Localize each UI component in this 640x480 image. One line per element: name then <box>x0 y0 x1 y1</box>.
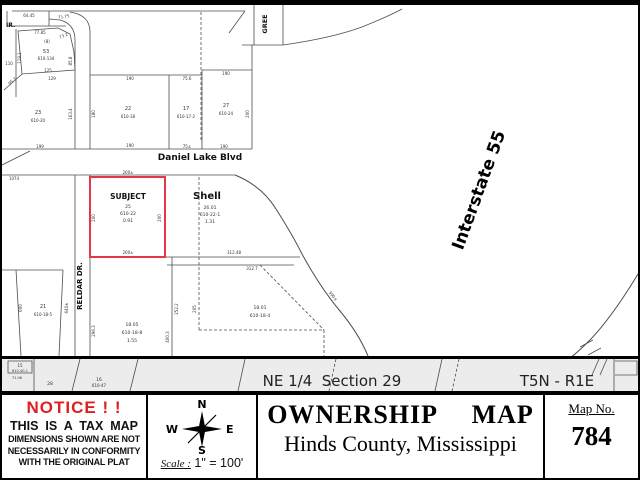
dim-label: 163.4 <box>68 108 73 120</box>
compass-north-label: N <box>197 398 206 411</box>
parcel-number: 22 <box>125 106 131 112</box>
scale-note: Scale : 1" = 100' <box>148 456 256 470</box>
dim-label: 200 <box>91 214 96 222</box>
parcel-number: 53 <box>43 49 49 55</box>
parcel-lines <box>2 5 638 358</box>
compass-rose: N S W E <box>157 397 247 455</box>
scale-value: 1" = 100' <box>191 456 243 470</box>
notice-box: NOTICE ! ! THIS IS A TAX MAP DIMENSIONS … <box>2 395 148 478</box>
dim-label: 200 <box>245 110 250 118</box>
subject-parcel-id: 610-22 <box>120 211 136 217</box>
dim-label: 180 <box>91 110 96 118</box>
parcel-id: 610-47 <box>92 383 107 388</box>
interstate-55-label: Interstate 55 <box>448 128 510 253</box>
map-subtitle: Hinds County, Mississippi <box>258 431 543 457</box>
shell-label: Shell <box>193 191 221 202</box>
shell-parcel-id: 610-22-1 <box>200 212 221 218</box>
subject-label: SUBJECT <box>110 192 147 201</box>
dim-label: 252.2 <box>174 303 179 315</box>
compass-west-label: W <box>166 423 178 436</box>
compass-east-label: E <box>226 423 234 436</box>
parcel-number: 18.05 <box>126 322 139 328</box>
dim-label: 75± <box>183 144 191 149</box>
title-block-panel: NOTICE ! ! THIS IS A TAX MAP DIMENSIONS … <box>2 393 638 478</box>
parcel-acreage: 1.55 <box>127 338 137 344</box>
notice-title: NOTICE ! ! <box>2 398 146 418</box>
compass-scale-box: N S W E Scale : 1" = 100' <box>148 395 258 478</box>
parcel-note: (8) <box>44 39 50 44</box>
parcel-number: 17 <box>183 106 189 112</box>
parcel-number: 23 <box>35 110 41 116</box>
notice-disclaimer-line: NECESSARILY IN CONFORMITY <box>2 446 146 457</box>
parcel-number: 21 <box>40 304 46 310</box>
notice-disclaimer-line: DIMENSIONS SHOWN ARE NOT <box>2 434 146 445</box>
dim-label: 1074 <box>9 176 20 181</box>
parcel-id: 610-134 <box>38 56 55 61</box>
parcel-id: 610-18-5 <box>34 312 53 317</box>
parcel-id: 610-18-4 <box>250 313 271 319</box>
dim-label: 200 <box>157 214 162 222</box>
dim-label: 110 <box>5 61 13 66</box>
scale-label: Scale : <box>161 458 191 470</box>
dim-label: 190 <box>222 71 230 76</box>
notice-disclaimer-line: WITH THE ORIGINAL PLAT <box>2 457 146 468</box>
street-name-partial: IR. <box>6 22 15 29</box>
ownership-map-drawing: 64.4571.75IR.77.8573.2(8)53610-134119.11… <box>2 2 638 393</box>
street-name-partial-green: GREE <box>261 14 269 33</box>
map-number-label: Map No. <box>545 401 638 417</box>
dim-label: 129 <box>48 76 56 81</box>
dim-label: 400.3 <box>165 331 170 343</box>
dim-label: 64.45 <box>23 13 35 18</box>
parcel-id: 610-18 <box>121 114 136 119</box>
dim-label: 77.85 <box>34 30 46 35</box>
dim-label: 190 <box>220 144 228 149</box>
dim-label: 71.06 <box>12 376 22 380</box>
tax-map-sheet: 64.4571.75IR.77.8573.2(8)53610-134119.11… <box>0 0 640 480</box>
map-title-box: OWNERSHIP MAP Hinds County, Mississippi <box>258 395 545 478</box>
subject-acreage: 0.91 <box>123 218 133 224</box>
compass-star <box>182 411 222 447</box>
parcel-id: 610-40-1 <box>12 369 28 373</box>
parcel-id: 610-18-8 <box>122 330 143 336</box>
dim-label: 75.6 <box>183 76 192 81</box>
parcel-id: 610-17-2 <box>177 114 196 119</box>
parcel-number: 27 <box>223 103 229 109</box>
dim-label: 640± <box>64 303 69 314</box>
dim-label: 200± <box>123 250 134 255</box>
map-number-value: 784 <box>545 421 638 452</box>
map-title: OWNERSHIP MAP <box>258 401 543 429</box>
street-name-daniel-lake: Daniel Lake Blvd <box>158 153 242 163</box>
dim-label: 590± <box>328 290 339 302</box>
dim-label: 200± <box>123 170 134 175</box>
map-number-box: Map No. 784 <box>545 395 638 478</box>
parcel-id: 610-24 <box>219 111 234 116</box>
dim-label: 190 <box>126 143 134 148</box>
notice-line-tax-map: THIS IS A TAX MAP <box>2 419 146 433</box>
dim-label: 190 <box>126 76 134 81</box>
map-top-border <box>2 2 638 5</box>
parcel-number: 15 <box>17 363 23 368</box>
parcel-number: 28 <box>47 381 53 387</box>
dim-label: 71.75 <box>58 13 70 20</box>
shell-parcel-number: 26.01 <box>204 205 217 211</box>
township-label: T5N - R1E <box>519 372 594 390</box>
dashed-boundary-lines <box>199 12 324 356</box>
dim-label: 119.1 <box>17 52 22 64</box>
street-name-reldar: RELDAR DR. <box>76 262 84 310</box>
shell-acreage: 1.31 <box>205 219 215 225</box>
dim-label: 205 <box>192 305 197 313</box>
parcel-id: 610-20 <box>31 118 46 123</box>
dim-label: 296.3 <box>91 325 96 337</box>
dim-label: 312.48 <box>227 250 241 255</box>
subject-parcel-number: 25 <box>125 204 131 210</box>
section-label: NE 1/4 Section 29 <box>263 372 402 390</box>
dim-label: 199 <box>36 144 44 149</box>
dim-label: 312.7 <box>246 266 258 271</box>
subject-parcel-outline <box>90 177 165 257</box>
dim-label: 125 <box>44 68 52 73</box>
dim-label: 600 <box>18 304 23 312</box>
dim-label: 85.8 <box>68 56 73 65</box>
parcel-number: 18.01 <box>254 305 267 311</box>
